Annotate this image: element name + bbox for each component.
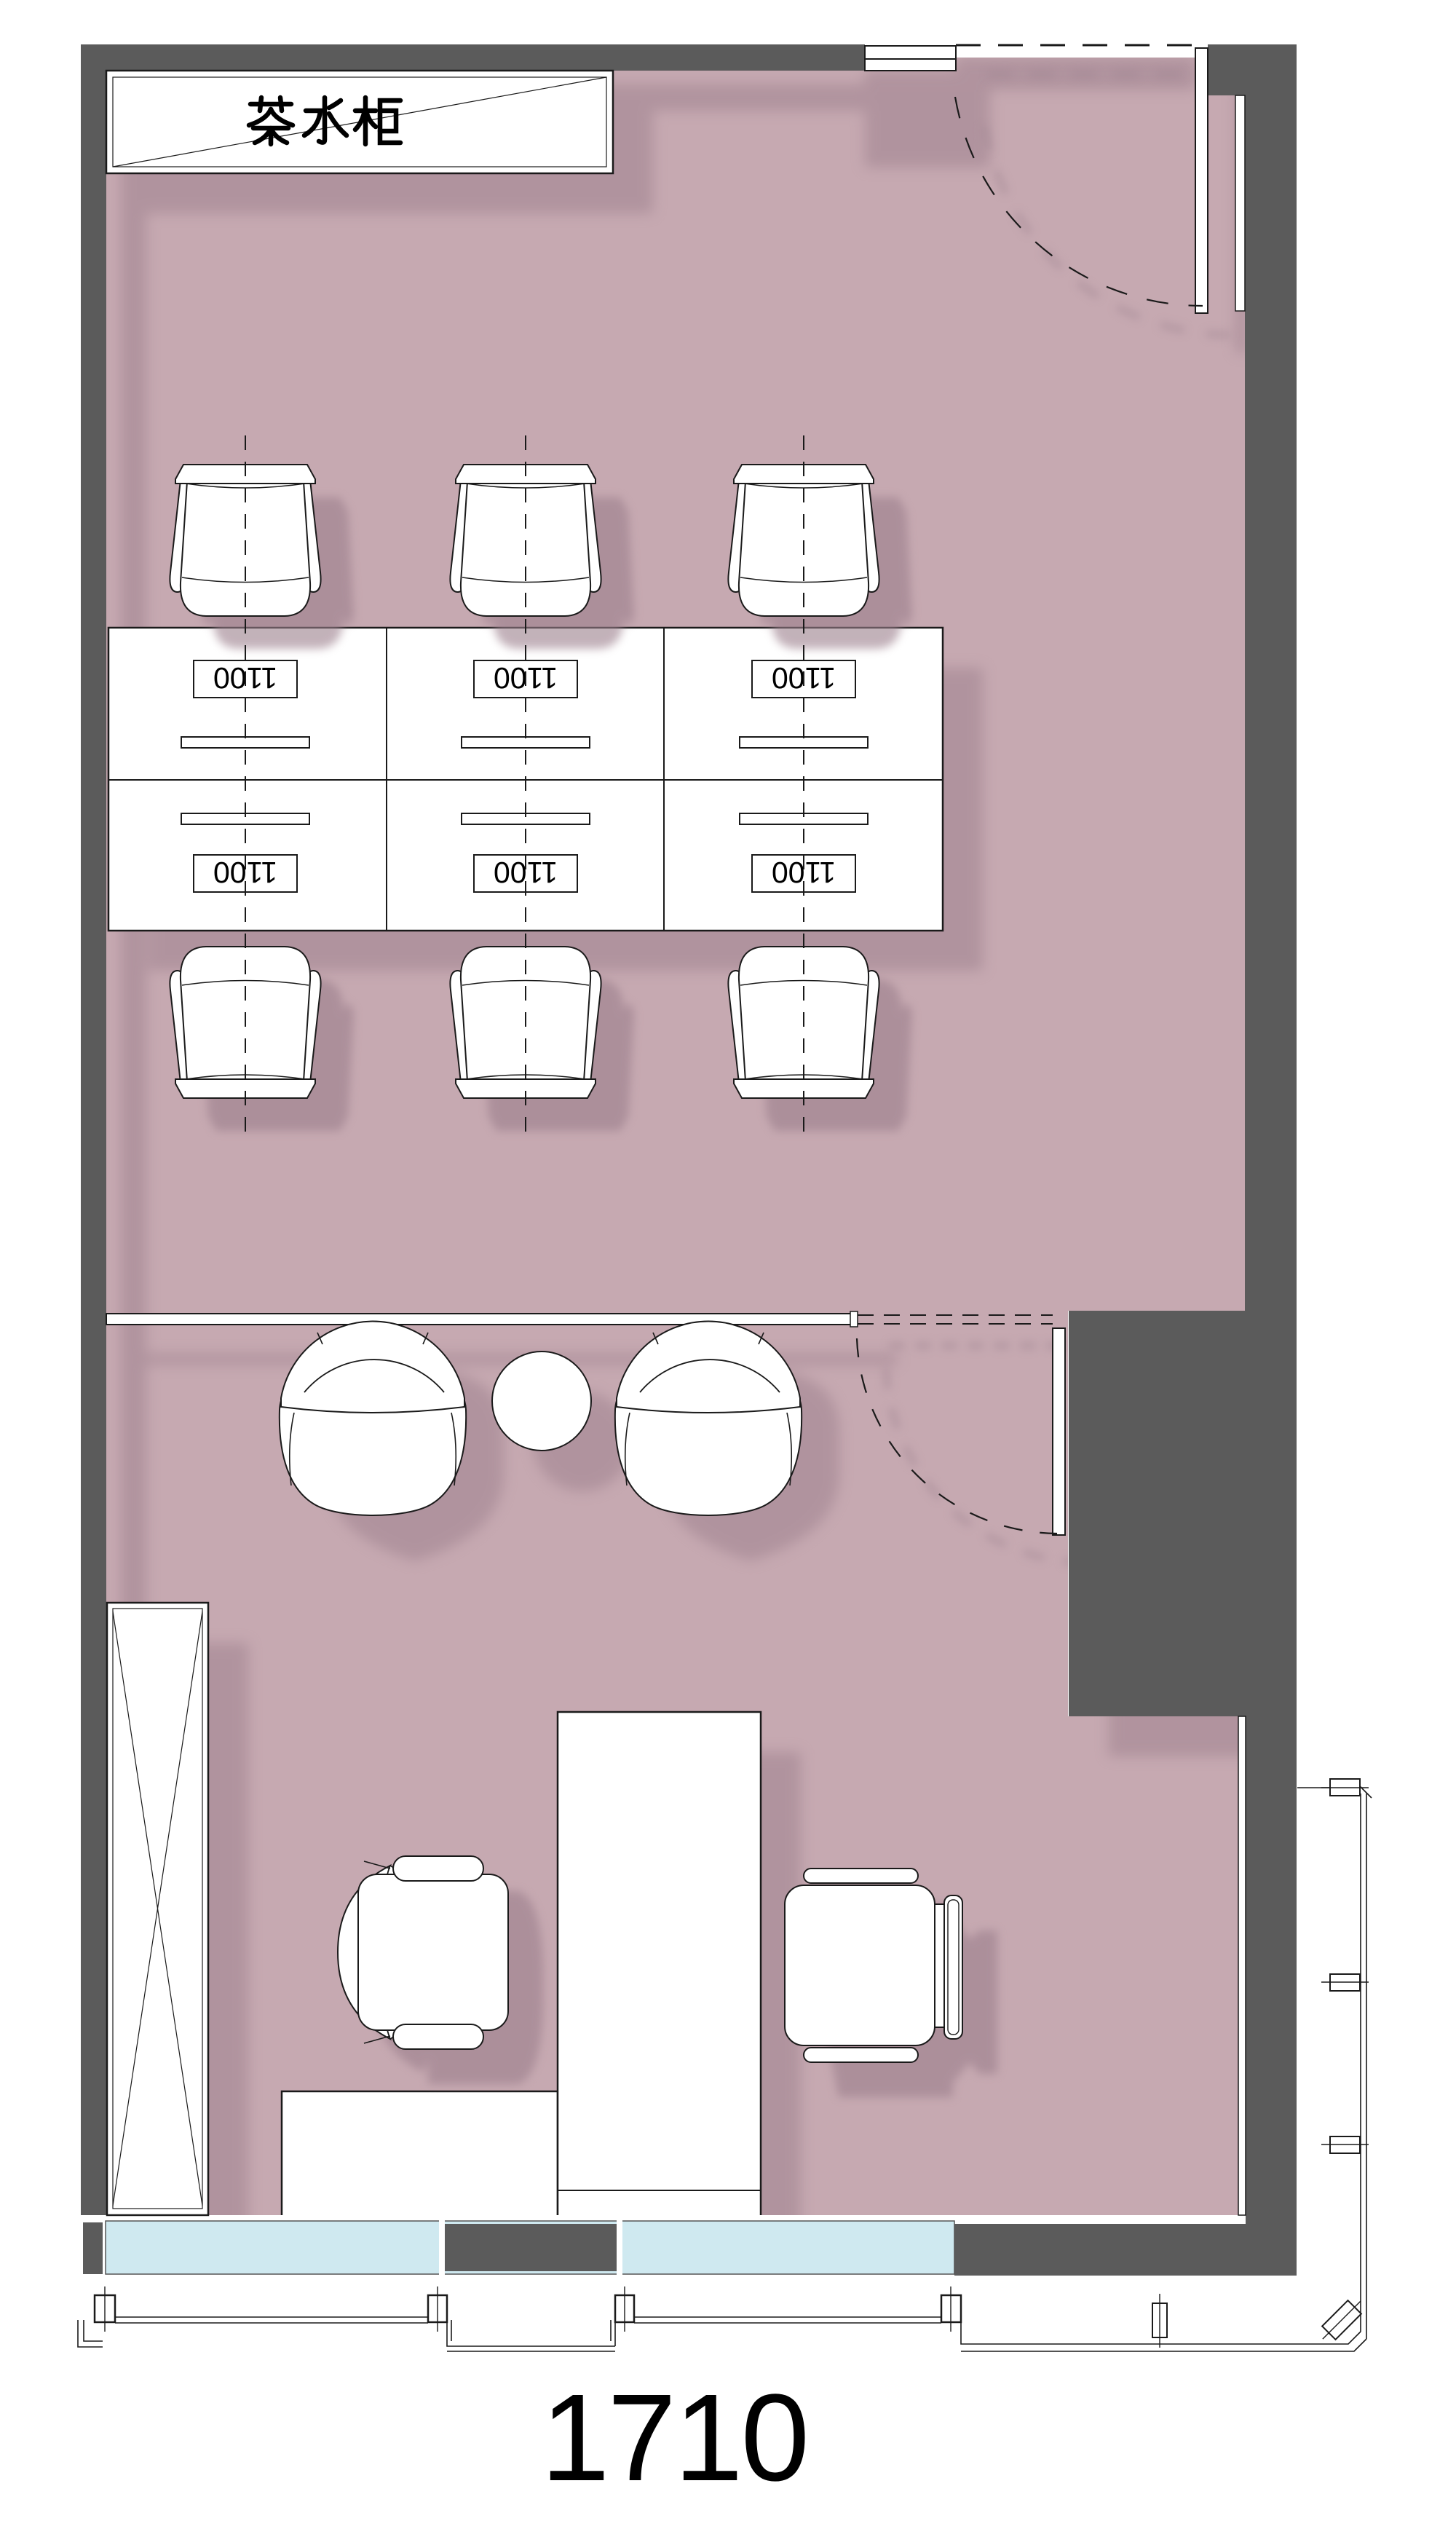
svg-text:1710: 1710 (541, 2369, 807, 2507)
